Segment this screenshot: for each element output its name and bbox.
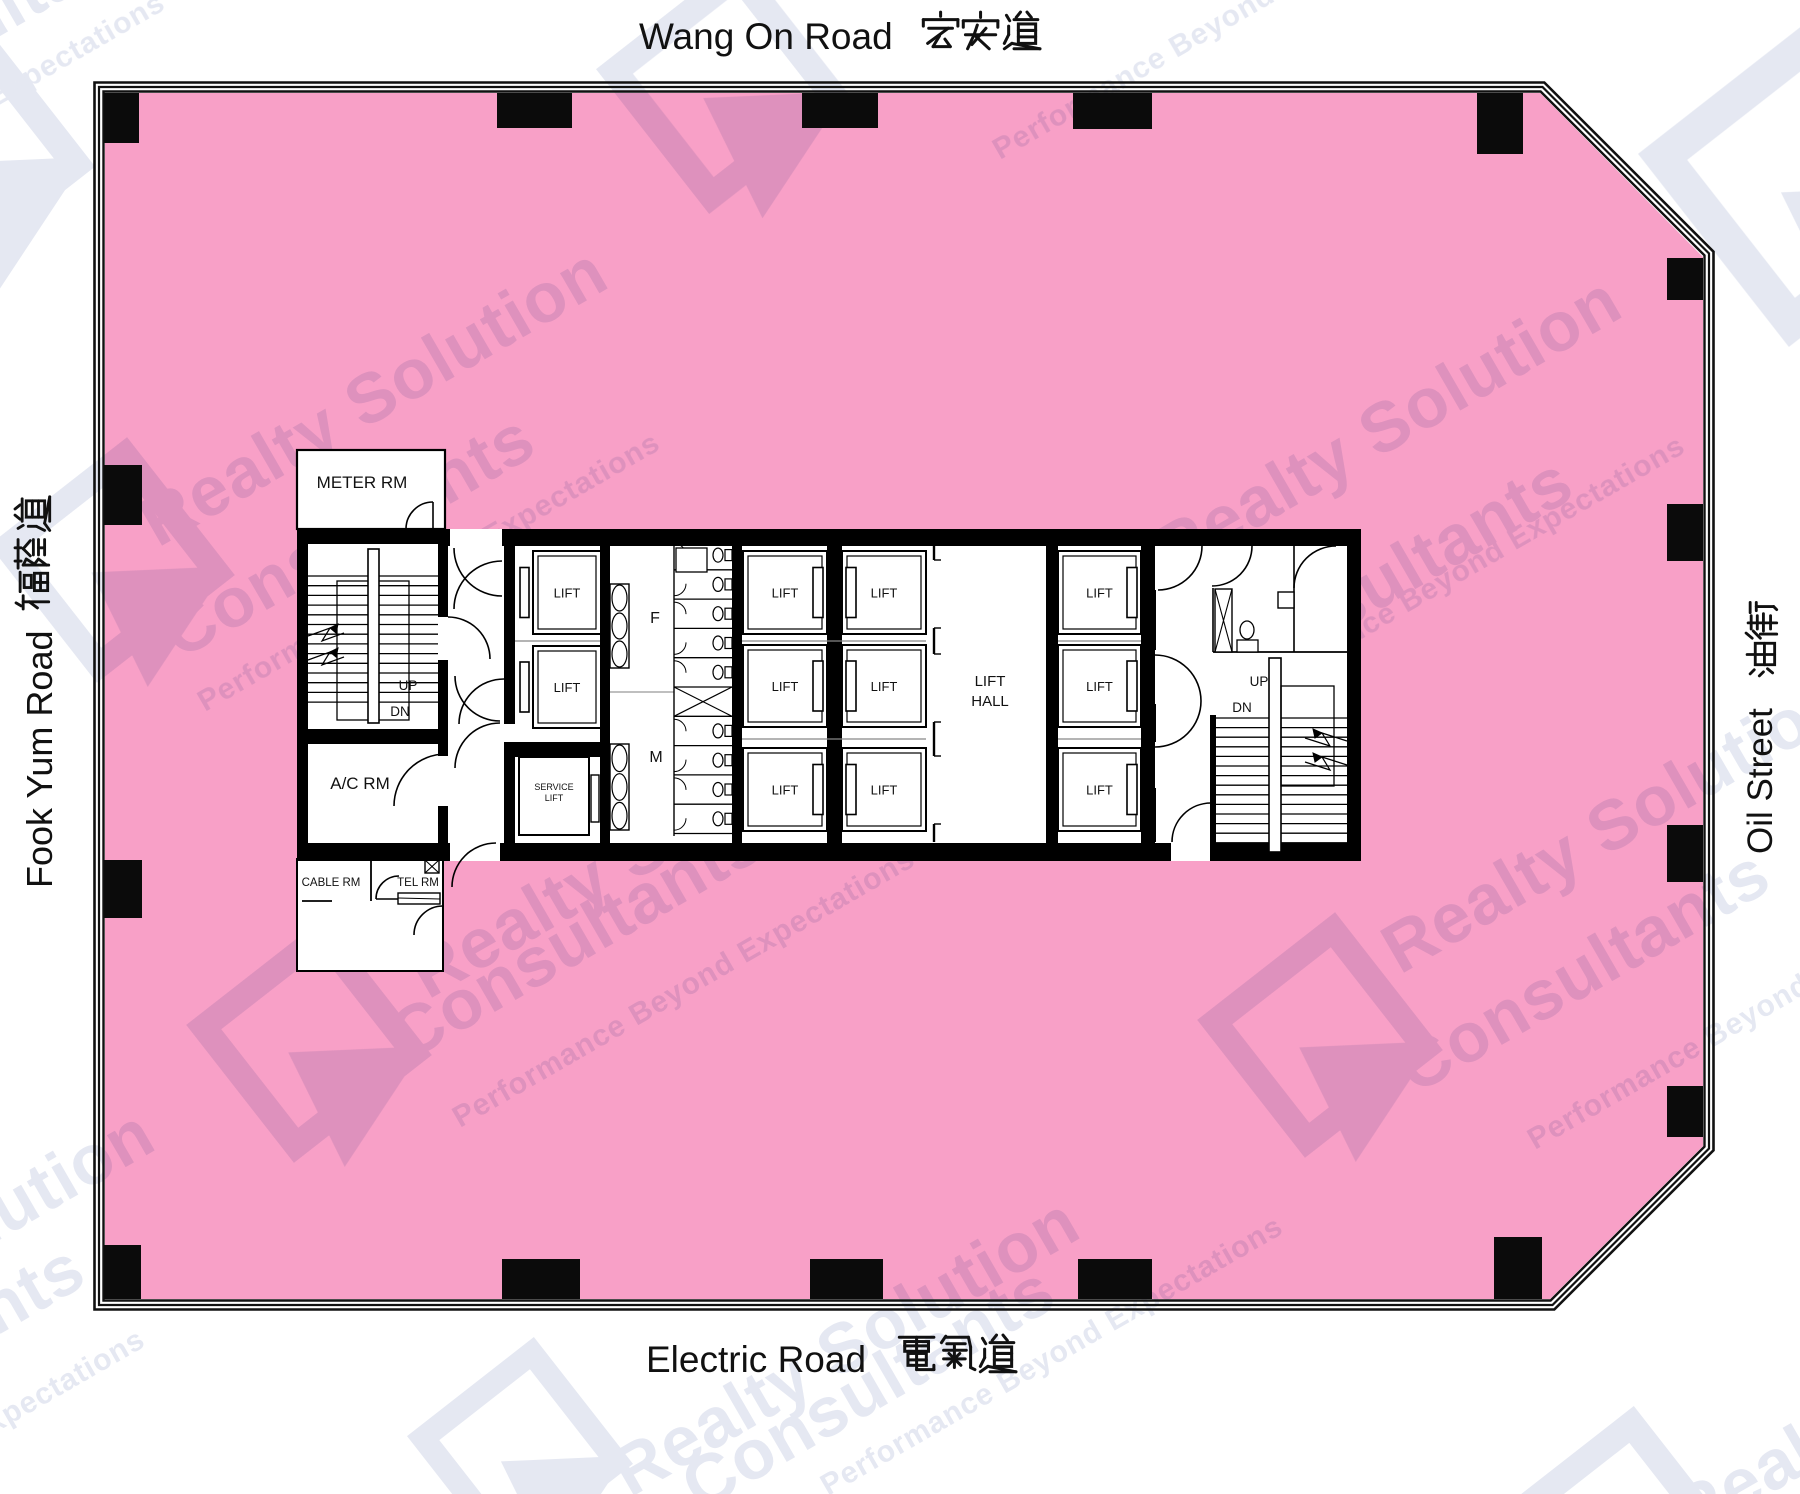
svg-text:F: F [650, 610, 660, 627]
svg-text:LIFT: LIFT [545, 793, 564, 803]
svg-text:LIFT: LIFT [871, 679, 898, 694]
svg-text:LIFT: LIFT [1086, 783, 1113, 798]
svg-text:CABLE RM: CABLE RM [302, 877, 361, 889]
svg-text:Electric Road: Electric Road [646, 1339, 866, 1380]
svg-text:UP: UP [399, 678, 418, 693]
svg-text:LIFT: LIFT [772, 679, 799, 694]
svg-text:Fook Yum Road: Fook Yum Road [19, 631, 60, 888]
svg-text:TEL RM: TEL RM [397, 877, 439, 889]
svg-text:DN: DN [1232, 700, 1252, 715]
svg-text:A/C RM: A/C RM [330, 774, 390, 793]
svg-text:LIFT: LIFT [871, 783, 898, 798]
svg-text:LIFT: LIFT [975, 673, 1006, 690]
svg-text:LIFT: LIFT [1086, 679, 1113, 694]
svg-text:Performance Beyond Expectation: Performance Beyond Expectations [0, 1323, 151, 1494]
svg-text:M: M [649, 749, 662, 766]
svg-text:LIFT: LIFT [772, 586, 799, 601]
svg-text:LIFT: LIFT [554, 680, 581, 695]
svg-text:Wang On Road: Wang On Road [639, 16, 893, 57]
svg-text:HALL: HALL [971, 693, 1009, 710]
svg-text:LIFT: LIFT [871, 586, 898, 601]
svg-text:SERVICE: SERVICE [534, 782, 573, 792]
svg-text:UP: UP [1250, 674, 1269, 689]
svg-text:METER RM: METER RM [317, 473, 408, 492]
svg-text:LIFT: LIFT [772, 783, 799, 798]
svg-text:Realty Solution: Realty Solution [1659, 1223, 1800, 1494]
svg-text:LIFT: LIFT [554, 586, 581, 601]
svg-text:DN: DN [390, 704, 410, 719]
svg-text:Oil Street: Oil Street [1741, 708, 1780, 854]
svg-text:LIFT: LIFT [1086, 586, 1113, 601]
